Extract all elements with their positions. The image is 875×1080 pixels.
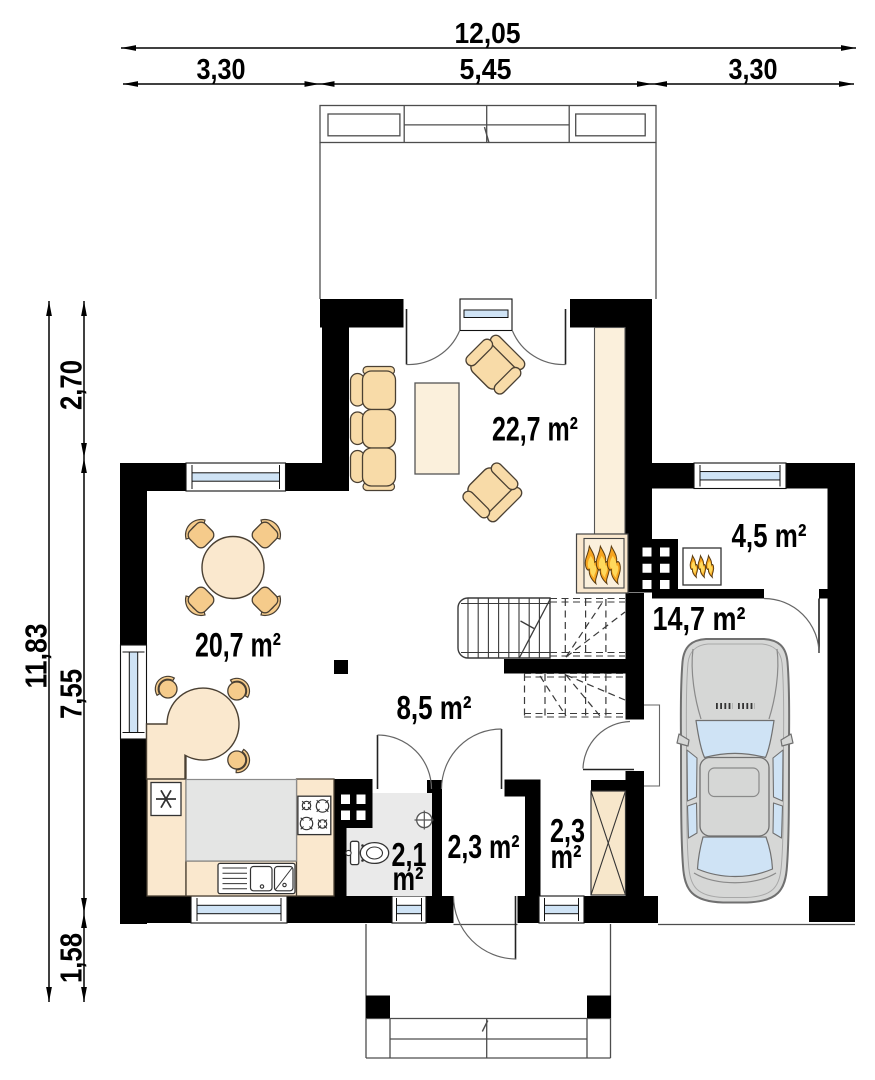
svg-text:11,83: 11,83	[19, 624, 54, 689]
svg-text:2,3 m²: 2,3 m²	[448, 828, 520, 865]
svg-text:5,45: 5,45	[460, 54, 512, 86]
svg-text:22,7 m²: 22,7 m²	[492, 411, 578, 449]
svg-text:m²: m²	[551, 838, 582, 875]
svg-text:2,70: 2,70	[54, 360, 89, 410]
svg-text:m²: m²	[393, 860, 424, 897]
svg-text:3,30: 3,30	[197, 54, 246, 86]
svg-text:1,58: 1,58	[54, 933, 89, 983]
svg-text:20,7 m²: 20,7 m²	[195, 627, 281, 665]
svg-text:3,30: 3,30	[729, 54, 778, 86]
svg-text:12,05: 12,05	[455, 18, 521, 50]
svg-text:8,5 m²: 8,5 m²	[397, 689, 472, 726]
svg-text:4,5 m²: 4,5 m²	[732, 517, 807, 554]
svg-text:7,55: 7,55	[54, 669, 89, 719]
svg-text:14,7 m²: 14,7 m²	[653, 600, 746, 637]
